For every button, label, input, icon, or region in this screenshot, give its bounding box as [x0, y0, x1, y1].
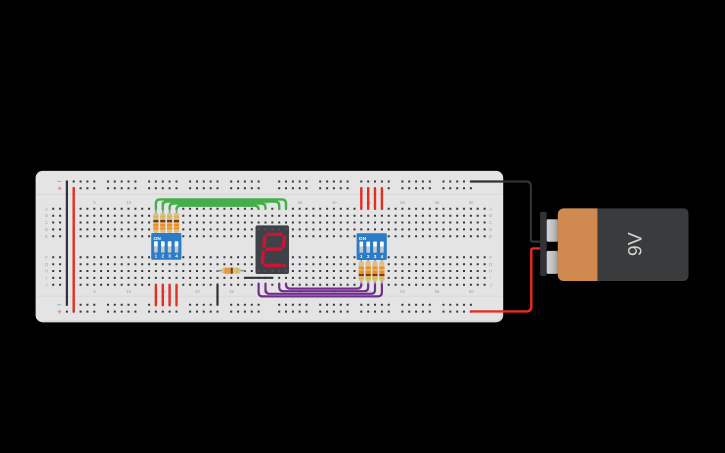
svg-text:A: A [489, 206, 492, 211]
svg-text:40: 40 [332, 200, 337, 205]
svg-text:H: H [489, 269, 492, 274]
svg-text:35: 35 [298, 200, 303, 205]
svg-text:1: 1 [360, 254, 363, 259]
svg-text:C: C [489, 220, 492, 225]
svg-text:1: 1 [155, 254, 158, 259]
svg-text:55: 55 [435, 200, 440, 205]
svg-text:J: J [490, 282, 492, 287]
svg-text:60: 60 [469, 200, 474, 205]
svg-text:60: 60 [469, 289, 474, 294]
svg-text:F: F [45, 255, 48, 260]
svg-text:H: H [45, 269, 48, 274]
svg-text:I: I [490, 276, 491, 281]
svg-text:ON: ON [359, 236, 367, 242]
svg-text:E: E [45, 234, 48, 239]
svg-text:E: E [489, 234, 492, 239]
svg-text:2: 2 [367, 254, 370, 259]
svg-text:J: J [46, 282, 48, 287]
svg-text:4: 4 [381, 254, 384, 259]
svg-text:50: 50 [400, 289, 405, 294]
svg-text:50: 50 [400, 200, 405, 205]
svg-text:C: C [45, 220, 48, 225]
svg-text:A: A [45, 206, 48, 211]
svg-text:2: 2 [161, 254, 164, 259]
svg-text:20: 20 [195, 289, 200, 294]
svg-text:25: 25 [229, 289, 234, 294]
svg-text:3: 3 [374, 254, 377, 259]
svg-text:3: 3 [168, 254, 171, 259]
svg-text:F: F [489, 255, 492, 260]
svg-text:9V: 9V [625, 232, 647, 256]
svg-text:55: 55 [435, 289, 440, 294]
svg-text:10: 10 [126, 200, 131, 205]
svg-text:D: D [45, 227, 48, 232]
svg-text:10: 10 [126, 289, 131, 294]
svg-text:4: 4 [175, 254, 178, 259]
svg-text:D: D [489, 227, 492, 232]
svg-text:ON: ON [153, 236, 161, 242]
svg-text:B: B [489, 213, 492, 218]
svg-text:B: B [45, 213, 48, 218]
svg-text:I: I [46, 276, 47, 281]
